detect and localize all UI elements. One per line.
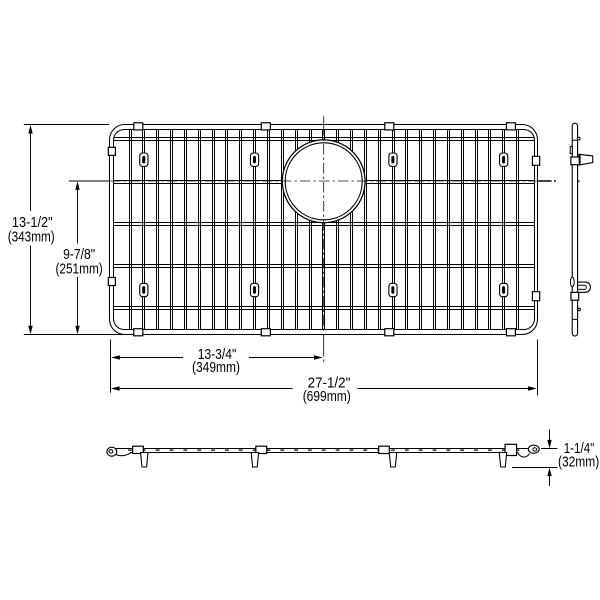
svg-text:(32mm): (32mm) (558, 454, 599, 471)
svg-text:(699mm): (699mm) (303, 388, 351, 405)
svg-text:(349mm): (349mm) (192, 359, 240, 376)
svg-text:(343mm): (343mm) (8, 229, 55, 246)
svg-text:(251mm): (251mm) (55, 261, 102, 278)
